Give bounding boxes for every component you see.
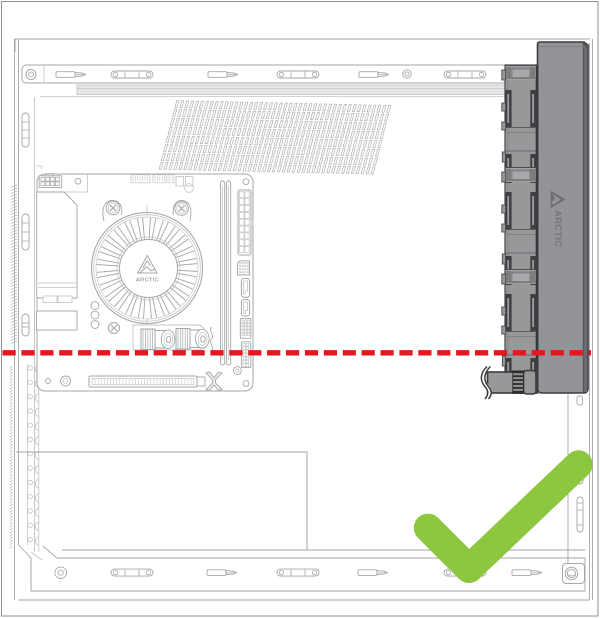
- svg-text:ARCTIC: ARCTIC: [553, 210, 564, 248]
- svg-text:ARCTIC: ARCTIC: [136, 278, 160, 284]
